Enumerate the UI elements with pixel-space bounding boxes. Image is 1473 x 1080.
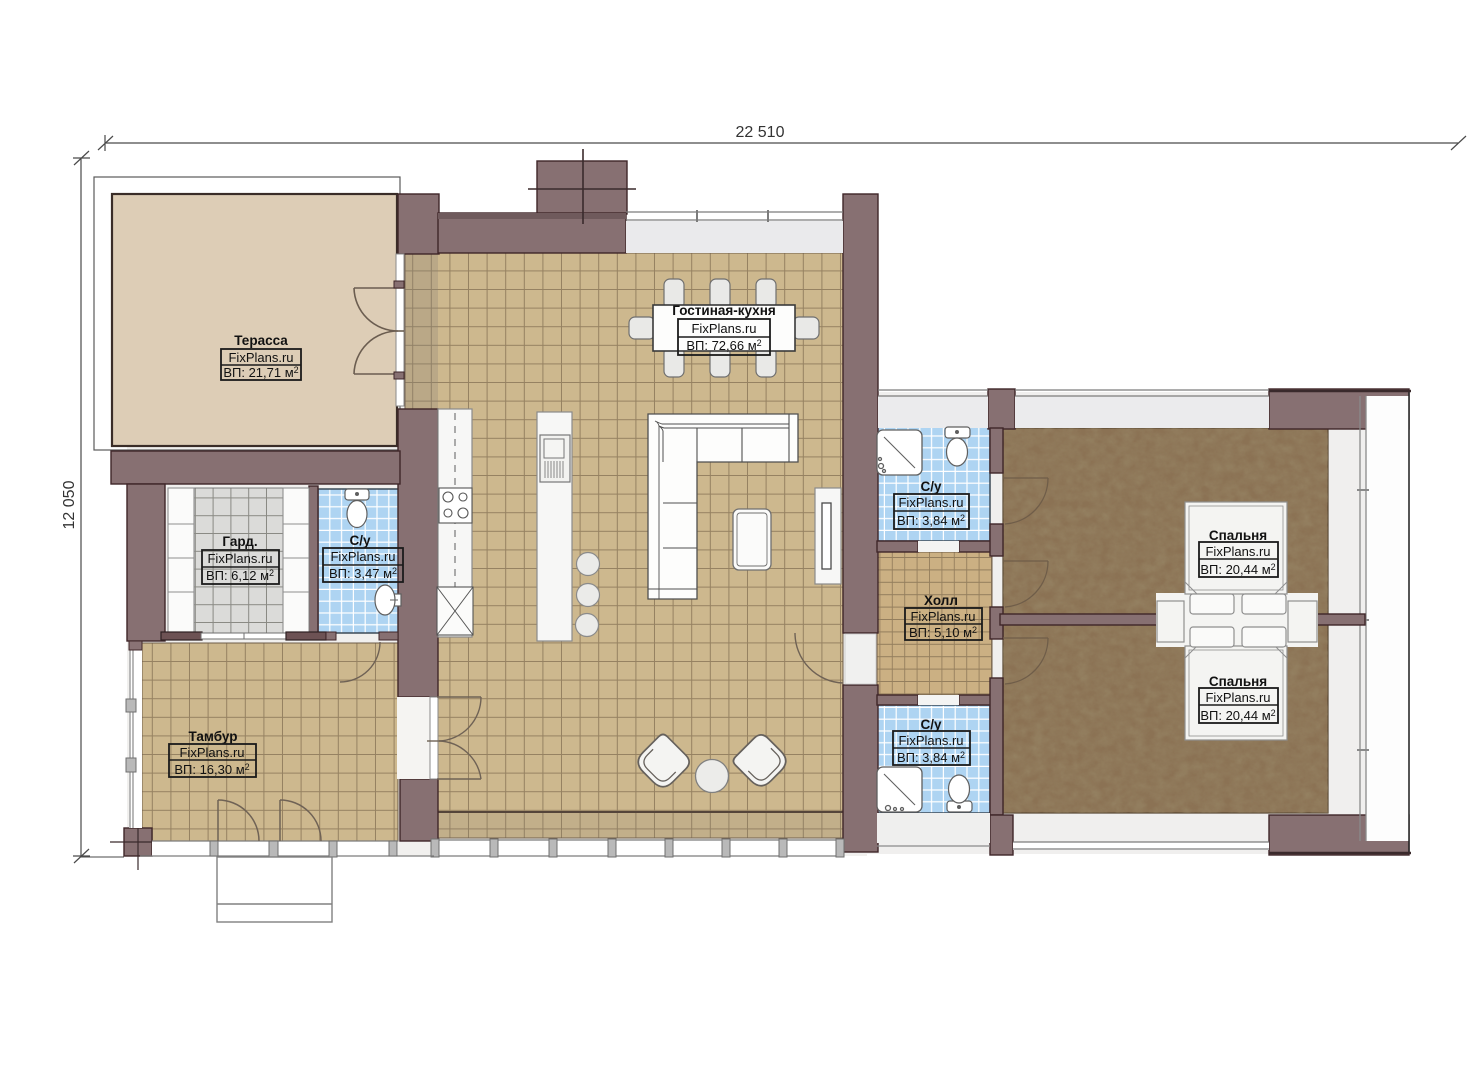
- svg-text:С/у: С/у: [349, 533, 371, 548]
- svg-text:FixPlans.ru: FixPlans.ru: [179, 745, 244, 760]
- svg-text:С/у: С/у: [920, 717, 942, 732]
- svg-text:ВП: 3,47 м2: ВП: 3,47 м2: [329, 566, 397, 581]
- svg-text:Тамбур: Тамбур: [189, 729, 238, 744]
- svg-text:ВП: 3,84 м2: ВП: 3,84 м2: [897, 513, 965, 528]
- svg-text:ВП: 5,10 м2: ВП: 5,10 м2: [909, 625, 977, 640]
- svg-text:FixPlans.ru: FixPlans.ru: [691, 321, 756, 336]
- svg-text:12 050: 12 050: [61, 480, 78, 529]
- svg-text:Холл: Холл: [924, 593, 958, 608]
- svg-text:ВП: 3,84 м2: ВП: 3,84 м2: [897, 750, 965, 765]
- svg-text:FixPlans.ru: FixPlans.ru: [910, 609, 975, 624]
- svg-text:Гард.: Гард.: [222, 534, 257, 549]
- svg-text:ВП: 16,30 м2: ВП: 16,30 м2: [174, 762, 249, 777]
- svg-text:FixPlans.ru: FixPlans.ru: [207, 551, 272, 566]
- svg-text:FixPlans.ru: FixPlans.ru: [898, 733, 963, 748]
- svg-text:FixPlans.ru: FixPlans.ru: [1205, 544, 1270, 559]
- svg-text:Спальня: Спальня: [1209, 674, 1267, 689]
- svg-text:ВП: 20,44 м2: ВП: 20,44 м2: [1200, 562, 1275, 577]
- svg-text:Гостиная-кухня: Гостиная-кухня: [672, 303, 775, 318]
- svg-text:С/у: С/у: [920, 479, 942, 494]
- svg-text:FixPlans.ru: FixPlans.ru: [898, 495, 963, 510]
- svg-text:ВП: 20,44 м2: ВП: 20,44 м2: [1200, 708, 1275, 723]
- svg-text:Спальня: Спальня: [1209, 528, 1267, 543]
- svg-text:22 510: 22 510: [736, 124, 785, 141]
- svg-text:ВП: 6,12 м2: ВП: 6,12 м2: [206, 568, 274, 583]
- svg-text:ВП: 72,66 м2: ВП: 72,66 м2: [686, 338, 761, 353]
- svg-text:FixPlans.ru: FixPlans.ru: [228, 350, 293, 365]
- svg-text:FixPlans.ru: FixPlans.ru: [330, 549, 395, 564]
- svg-text:Терасса: Терасса: [234, 333, 288, 348]
- svg-text:FixPlans.ru: FixPlans.ru: [1205, 690, 1270, 705]
- svg-text:ВП: 21,71 м2: ВП: 21,71 м2: [223, 365, 298, 380]
